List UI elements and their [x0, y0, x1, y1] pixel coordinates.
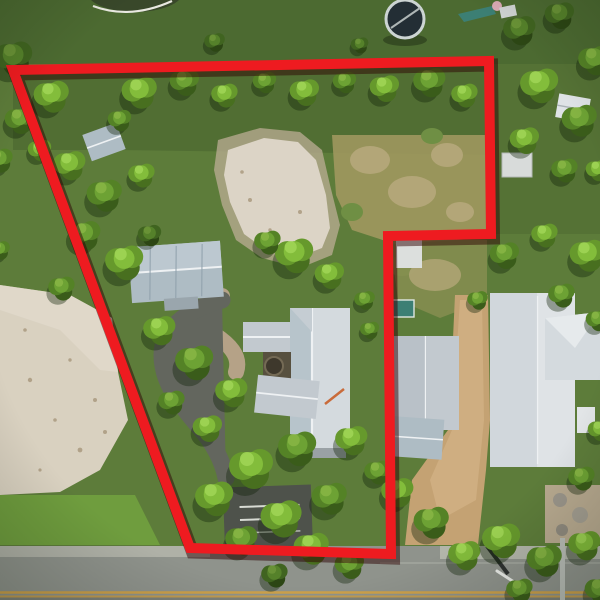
- vignette-overlay: [0, 0, 600, 600]
- aerial-photo-svg: [0, 0, 600, 600]
- aerial-photo: [0, 0, 600, 600]
